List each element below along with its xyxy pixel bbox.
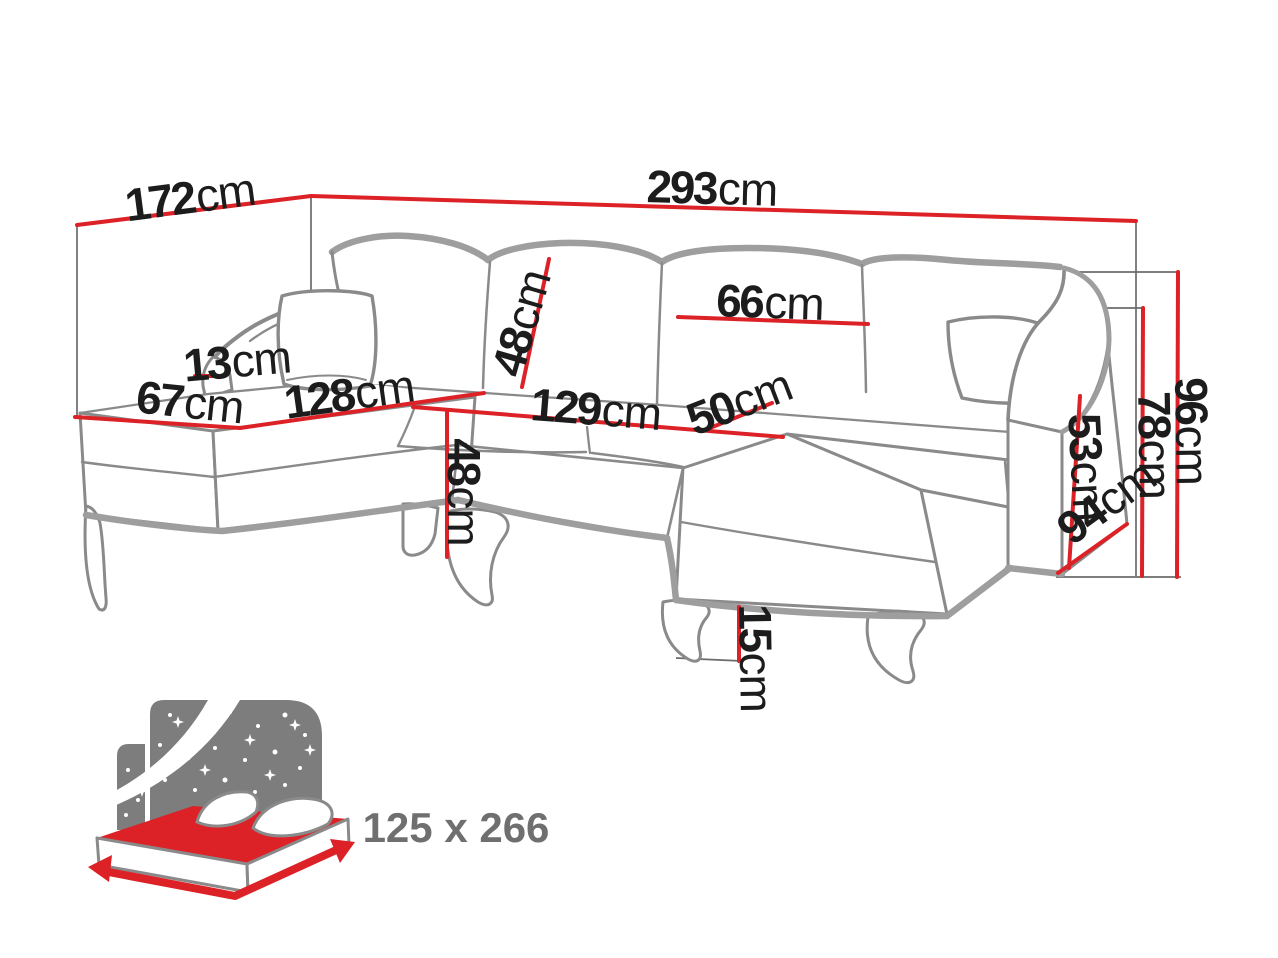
sofa-dimension-diagram: 172cm 293cm 13cm 67cm 128cm 48cm 66cm 12… bbox=[0, 0, 1278, 958]
right-chaise bbox=[676, 434, 1013, 614]
sleeping-area-size-label: 125 x 266 bbox=[363, 804, 550, 852]
leg-right-chaise-left bbox=[662, 600, 709, 661]
leg-right-chaise-right bbox=[867, 611, 924, 682]
dim-leg-height-label: 15cm bbox=[732, 604, 780, 712]
dim-back-cushion-width-label: 66cm bbox=[715, 277, 824, 327]
sofa-drawing bbox=[80, 236, 1127, 683]
bed-icon bbox=[86, 700, 355, 896]
dim-total-width-label: 293cm bbox=[646, 163, 778, 213]
leg-far-left bbox=[85, 506, 106, 610]
dim-seat-height-label: 48cm bbox=[441, 438, 487, 546]
dim-seat-length-label: 129cm bbox=[529, 381, 663, 437]
dim-total-height-label: 96cm bbox=[1168, 377, 1216, 485]
leg-corner bbox=[403, 504, 438, 555]
dim-left-chaise-width-label: 67cm bbox=[134, 374, 246, 431]
